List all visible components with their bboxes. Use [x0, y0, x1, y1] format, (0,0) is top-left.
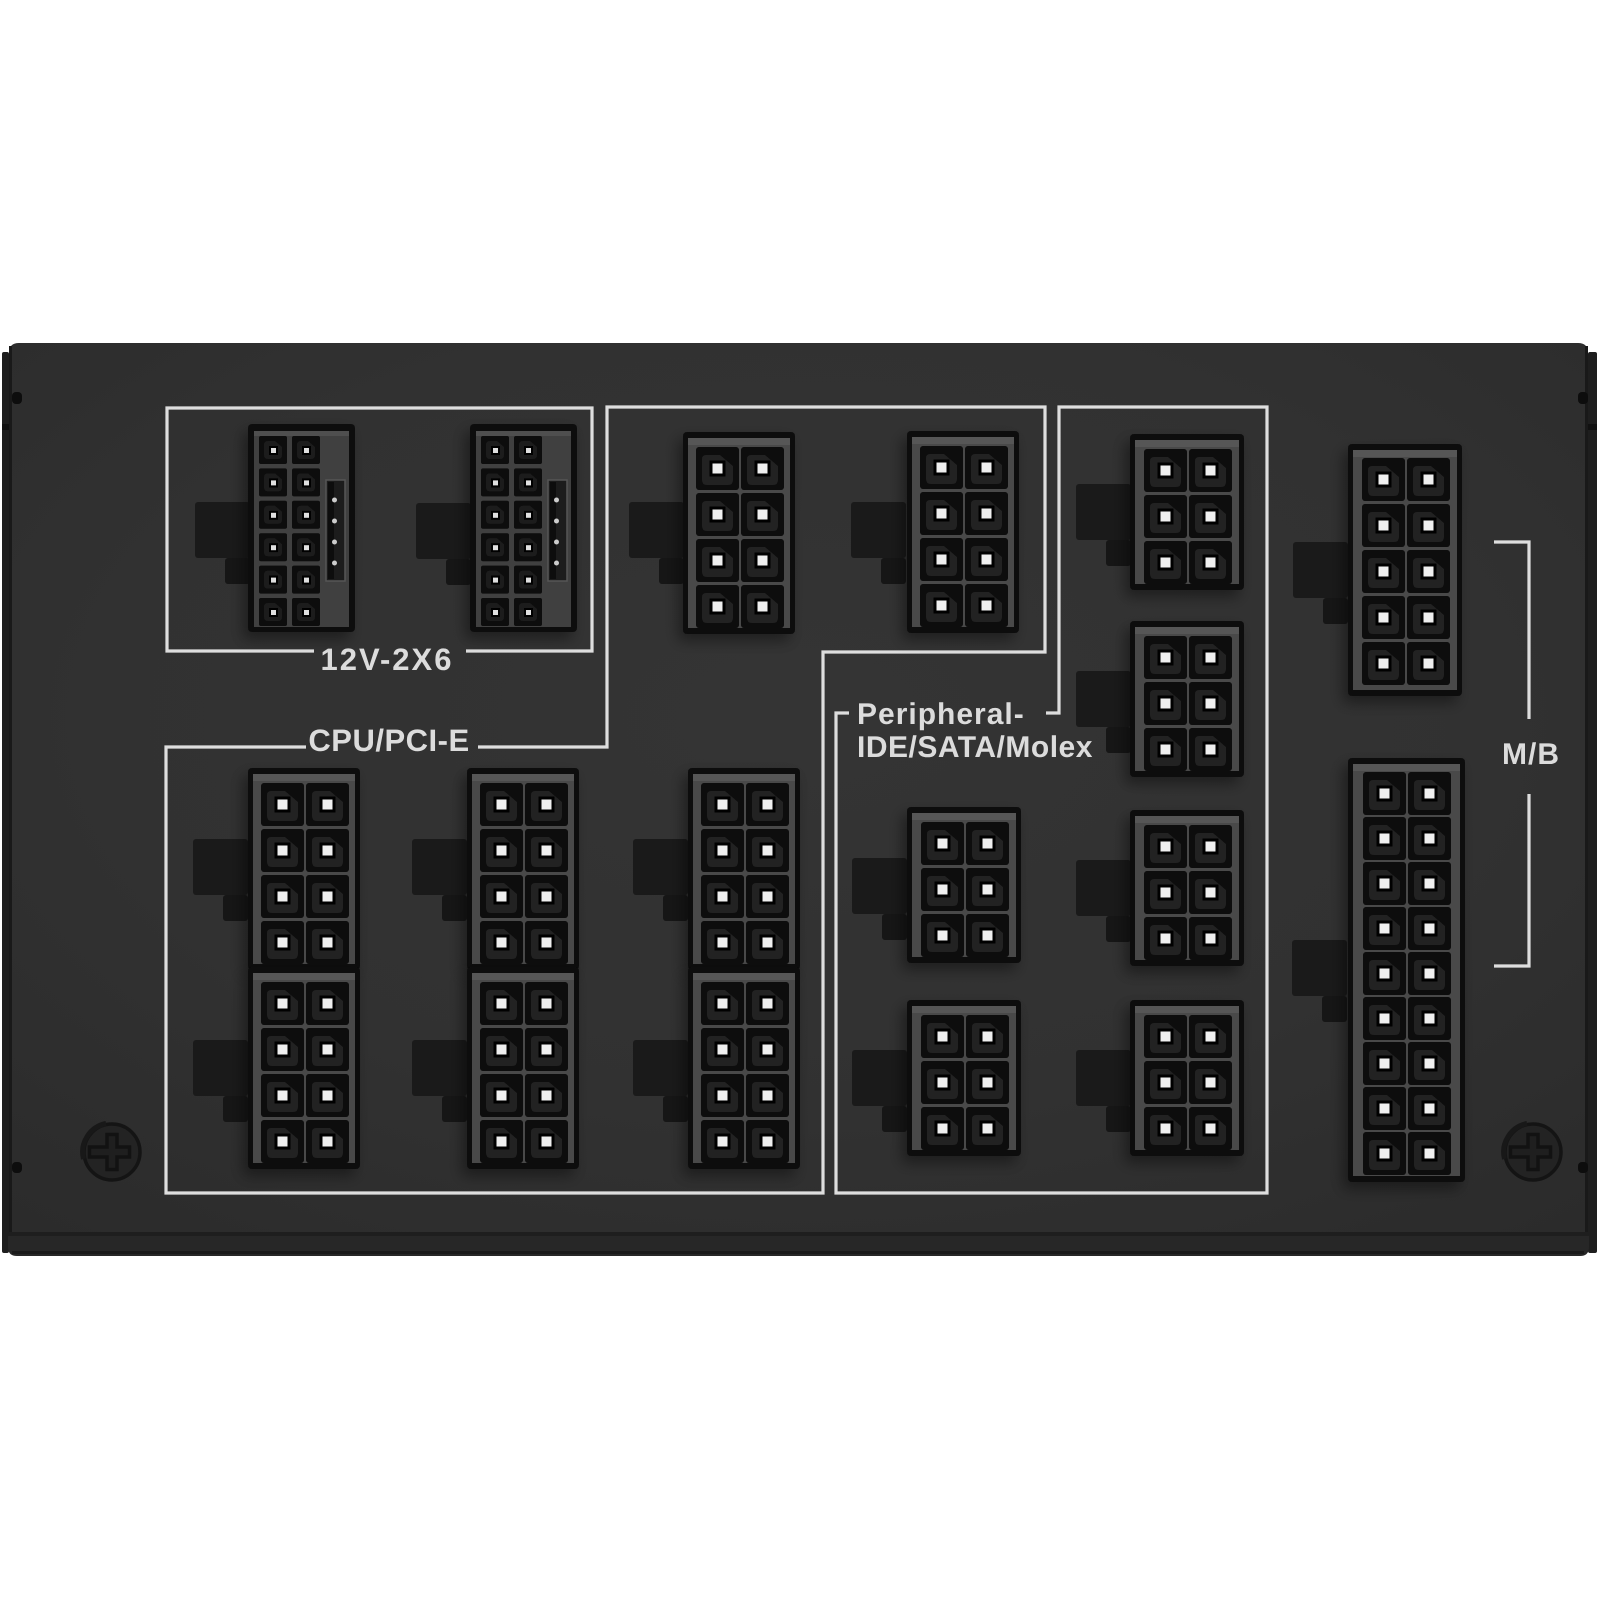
svg-text:M/B: M/B	[1502, 738, 1560, 771]
svg-text:IDE/SATA/Molex: IDE/SATA/Molex	[857, 731, 1093, 764]
svg-text:12V-2X6: 12V-2X6	[321, 642, 454, 677]
svg-text:CPU/PCI-E: CPU/PCI-E	[308, 723, 469, 758]
svg-text:Peripheral-: Peripheral-	[857, 698, 1025, 731]
